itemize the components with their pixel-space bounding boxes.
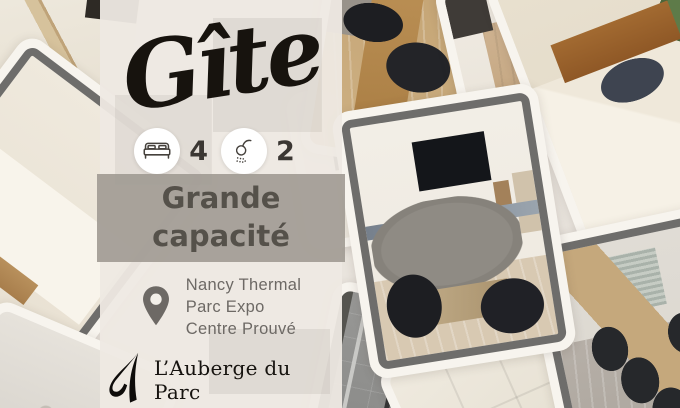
photo-living-room bbox=[330, 81, 578, 380]
photo-surface bbox=[340, 92, 567, 371]
brand-name: L’Auberge du Parc bbox=[154, 356, 342, 404]
location-block: Nancy Thermal Parc Expo Centre Prouvé bbox=[141, 276, 301, 340]
stats-row: 4 bbox=[134, 128, 308, 174]
bed-icon bbox=[134, 128, 180, 174]
shower-icon bbox=[221, 128, 267, 174]
center-panel: Gîte 4 bbox=[100, 0, 342, 408]
location-lines: Nancy Thermal Parc Expo Centre Prouvé bbox=[186, 275, 301, 340]
poster-title: Gîte bbox=[113, 0, 329, 143]
bedrooms-count: 4 bbox=[189, 136, 208, 167]
stat-showers: 2 bbox=[221, 128, 308, 174]
location-line: Centre Prouvé bbox=[186, 319, 301, 341]
location-pin-icon bbox=[141, 285, 171, 332]
location-line: Parc Expo bbox=[186, 297, 301, 319]
brand-row: L’Auberge du Parc bbox=[100, 351, 342, 408]
showers-count: 2 bbox=[276, 136, 295, 167]
capacity-banner: Grande capacité bbox=[97, 174, 345, 262]
stat-bedrooms: 4 bbox=[134, 128, 221, 174]
location-line: Nancy Thermal bbox=[186, 275, 301, 297]
gite-poster: Gîte 4 bbox=[0, 0, 680, 408]
auberge-logo-icon bbox=[100, 351, 144, 408]
